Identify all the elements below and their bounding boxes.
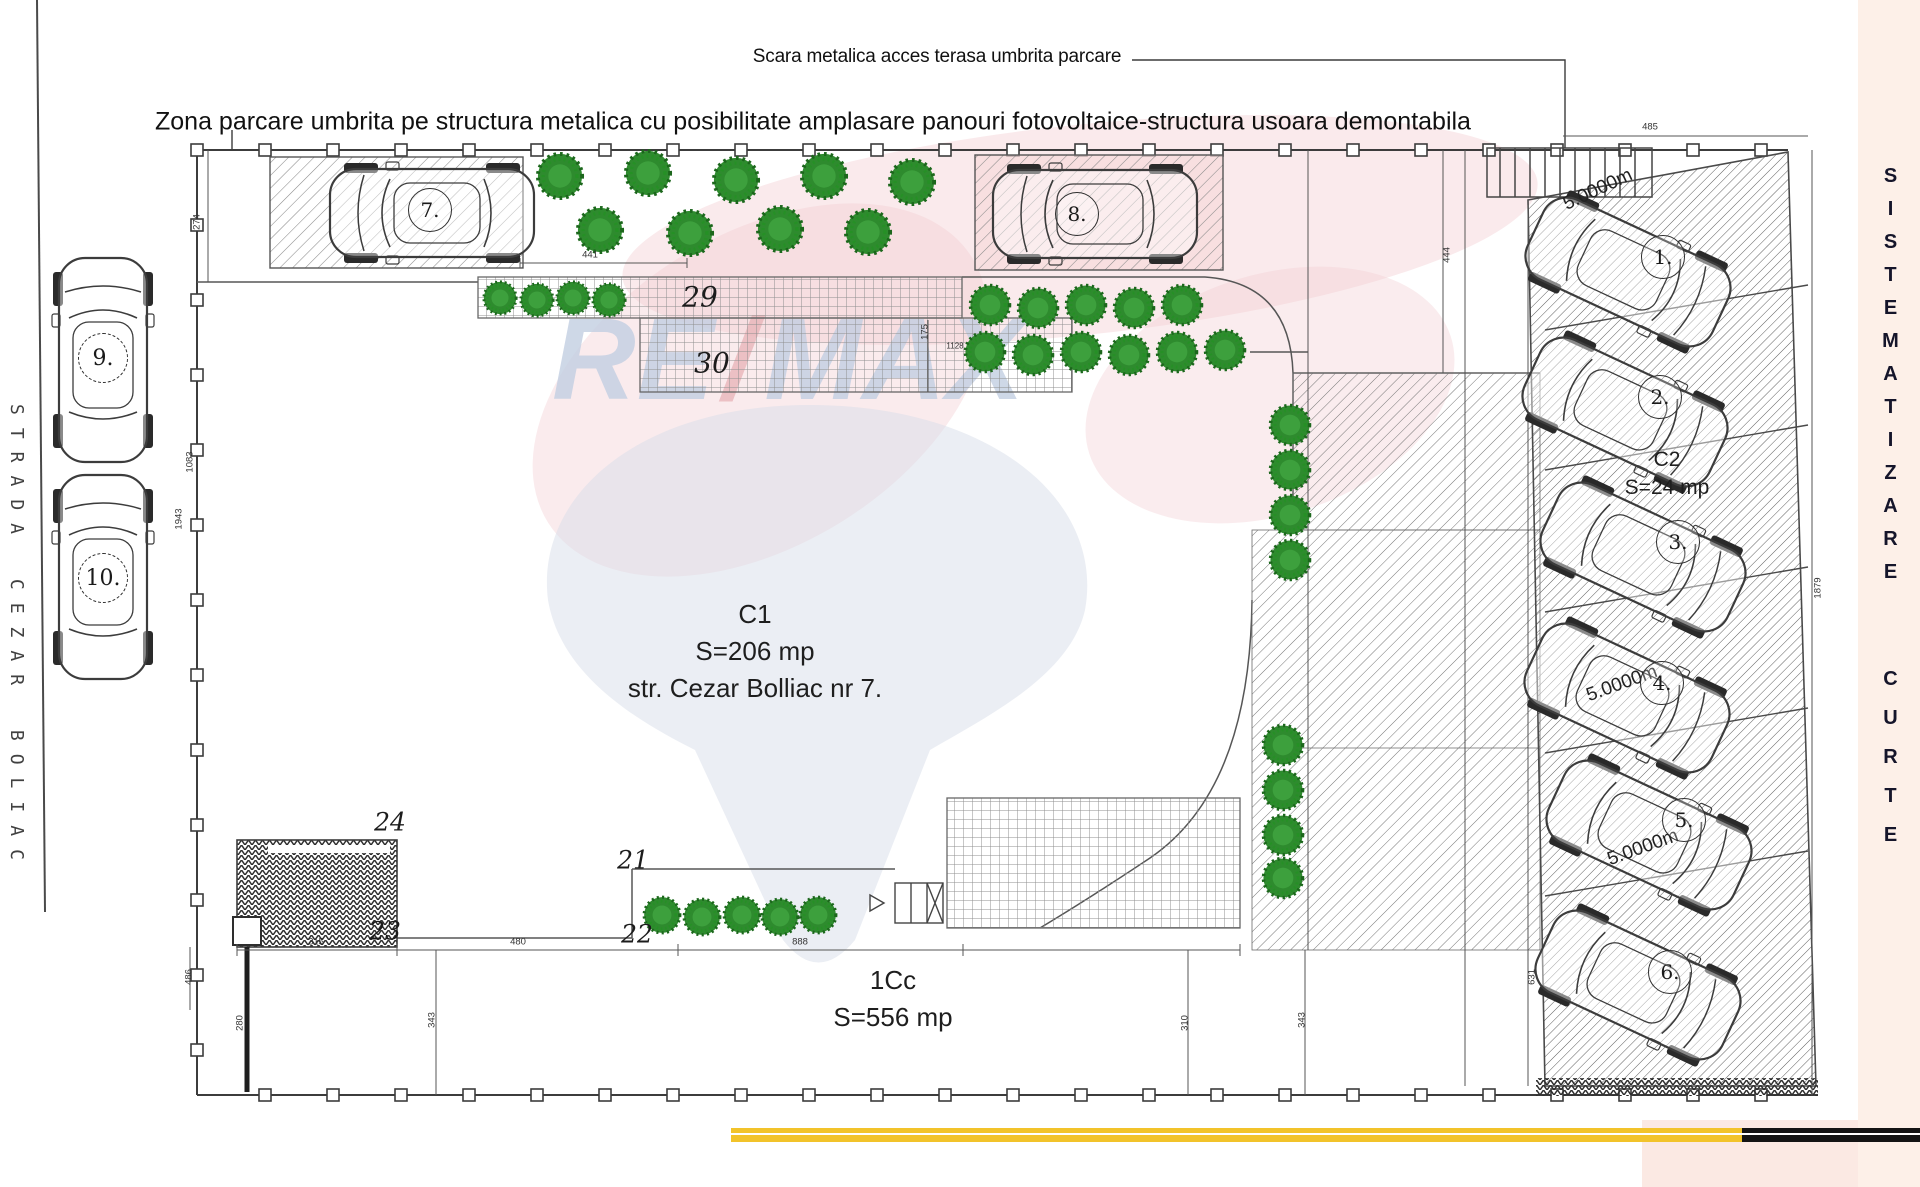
zone-c1-area: S=206 mp (628, 633, 882, 670)
dim-343a: 343 (427, 1012, 438, 1028)
dim-315: 315 (308, 937, 324, 948)
dim-175: 175 (920, 324, 931, 340)
spot-number-2: 2. (1638, 375, 1682, 419)
spot-number-7: 7. (408, 188, 452, 232)
dim-1083: 1083 (185, 451, 196, 472)
side-label-sistematizare: SISTEMATIZARE (1879, 165, 1902, 594)
canopy-note-label: Zona parcare umbrita pe structura metali… (155, 108, 1471, 137)
leader-lines (232, 60, 1565, 150)
site-plan-canvas: RE/MAX Scara metalica acces terasa umbri… (0, 0, 1920, 1187)
marker-30: 30 (694, 347, 730, 380)
street-name-left: STRADA CEZAR BOLIAC (6, 404, 27, 873)
gate-post (233, 917, 261, 945)
marker-23: 23 (369, 917, 401, 946)
small-stairs (895, 883, 943, 923)
zone-c1-name: C1 (628, 596, 882, 633)
marker-29: 29 (682, 281, 718, 314)
zone-1cc-label: 1Cc S=556 mp (833, 962, 952, 1036)
entrance-arrow-icon (870, 895, 884, 911)
dim-343b: 343 (1297, 1012, 1308, 1028)
canopy-trees (538, 151, 934, 255)
dim-888: 888 (792, 937, 808, 948)
zone-1cc-area: S=556 mp (833, 999, 952, 1036)
black-bar (1742, 1128, 1920, 1142)
dim-444: 444 (1442, 247, 1453, 263)
marker-21: 21 (617, 846, 649, 875)
spot-number-3: 3. (1656, 520, 1700, 564)
dim-1879: 1879 (1813, 577, 1824, 598)
dim-310: 310 (1180, 1015, 1191, 1031)
dim-486: 486 (184, 969, 195, 985)
paved-grid-area (947, 798, 1240, 928)
spot-number-6: 6. (1648, 950, 1692, 994)
spot-number-10: 10. (78, 553, 128, 603)
spot-number-5: 5. (1662, 798, 1706, 842)
zone-c2-label: C2 S=24 mp (1625, 446, 1710, 502)
stairs-note-label: Scara metalica acces terasa umbrita parc… (753, 46, 1121, 68)
dark-paved-area (233, 840, 397, 1092)
bottom-dense-hatch (1536, 1078, 1818, 1096)
zone-c1-address: str. Cezar Bolliac nr 7. (628, 670, 882, 707)
dim-441: 441 (582, 250, 598, 261)
side-label-curte: CURTE (1879, 668, 1902, 863)
dim-1128: 1128 (946, 342, 963, 351)
marker-24: 24 (374, 808, 406, 837)
zone-c1-label: C1 S=206 mp str. Cezar Bolliac nr 7. (628, 596, 882, 707)
street-edge-line (37, 0, 45, 912)
marker-22: 22 (621, 920, 653, 949)
zone-c2-area: S=24 mp (1625, 474, 1710, 502)
spot-number-1: 1. (1641, 235, 1685, 279)
dim-485: 485 (1642, 122, 1658, 133)
dim-1943: 1943 (174, 508, 185, 529)
zone-1cc-name: 1Cc (833, 962, 952, 999)
spot-number-4: 4. (1640, 661, 1684, 705)
spot-number-9: 9. (78, 333, 128, 383)
dim-631: 631 (1527, 969, 1538, 985)
yellow-bar (731, 1128, 1742, 1142)
spot-number-8: 8. (1055, 192, 1099, 236)
dim-480: 480 (510, 937, 526, 948)
dim-274: 274 (192, 214, 203, 230)
zone-c2-name: C2 (1625, 446, 1710, 474)
south-shrubs (644, 897, 836, 935)
dim-280: 280 (235, 1015, 246, 1031)
